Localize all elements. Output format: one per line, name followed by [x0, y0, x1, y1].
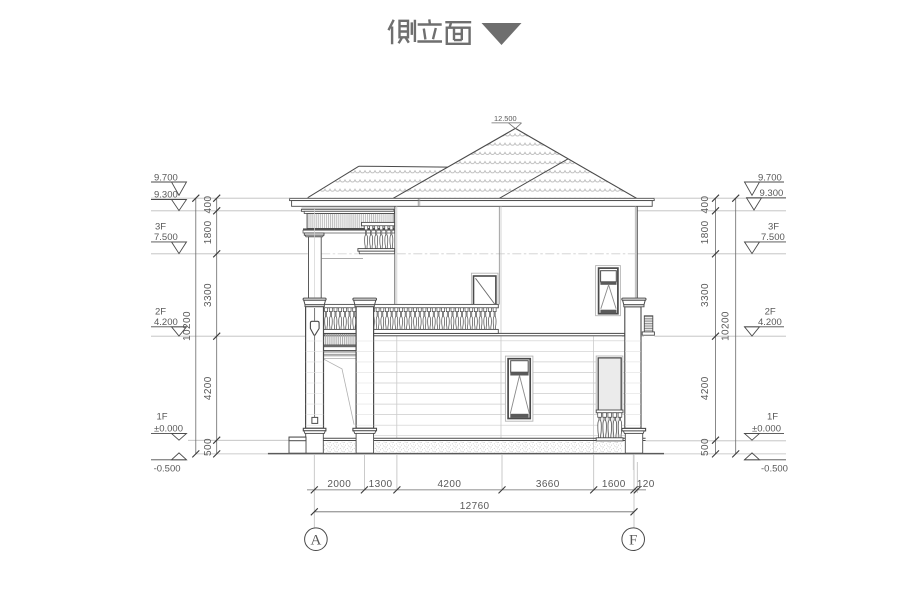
svg-text:1F: 1F	[767, 412, 778, 423]
svg-text:10200: 10200	[182, 311, 193, 341]
svg-text:12.500: 12.500	[494, 114, 517, 123]
svg-text:±0.000: ±0.000	[154, 424, 183, 435]
svg-text:7.500: 7.500	[154, 232, 178, 243]
svg-text:7.500: 7.500	[761, 232, 785, 243]
svg-text:3F: 3F	[155, 222, 166, 233]
svg-text:4.200: 4.200	[758, 317, 782, 328]
svg-text:9.300: 9.300	[760, 188, 784, 199]
svg-text:9.700: 9.700	[154, 172, 178, 183]
svg-text:4200: 4200	[437, 479, 461, 490]
svg-text:9.300: 9.300	[154, 189, 178, 200]
svg-text:500: 500	[203, 438, 214, 456]
svg-text:12760: 12760	[460, 501, 490, 512]
svg-text:2000: 2000	[327, 479, 351, 490]
svg-text:2F: 2F	[765, 306, 776, 317]
svg-text:±0.000: ±0.000	[752, 424, 781, 435]
svg-text:120: 120	[637, 479, 655, 490]
svg-text:4.200: 4.200	[154, 317, 178, 328]
svg-text:1300: 1300	[369, 479, 393, 490]
svg-text:400: 400	[700, 196, 711, 214]
svg-text:1800: 1800	[700, 220, 711, 244]
svg-text:1600: 1600	[602, 479, 626, 490]
svg-text:4200: 4200	[700, 376, 711, 400]
svg-text:400: 400	[203, 196, 214, 214]
svg-text:-0.500: -0.500	[761, 464, 788, 475]
svg-text:F: F	[629, 533, 637, 549]
svg-text:2F: 2F	[155, 306, 166, 317]
svg-text:A: A	[310, 533, 321, 549]
svg-text:-0.500: -0.500	[154, 464, 181, 475]
svg-text:1F: 1F	[157, 412, 168, 423]
svg-text:3660: 3660	[536, 479, 560, 490]
svg-text:10200: 10200	[720, 311, 731, 341]
svg-text:4200: 4200	[203, 376, 214, 400]
svg-text:1800: 1800	[203, 220, 214, 244]
svg-text:3300: 3300	[700, 283, 711, 307]
svg-text:500: 500	[700, 438, 711, 456]
svg-text:3300: 3300	[203, 283, 214, 307]
svg-text:3F: 3F	[768, 222, 779, 233]
svg-text:9.700: 9.700	[758, 172, 782, 183]
